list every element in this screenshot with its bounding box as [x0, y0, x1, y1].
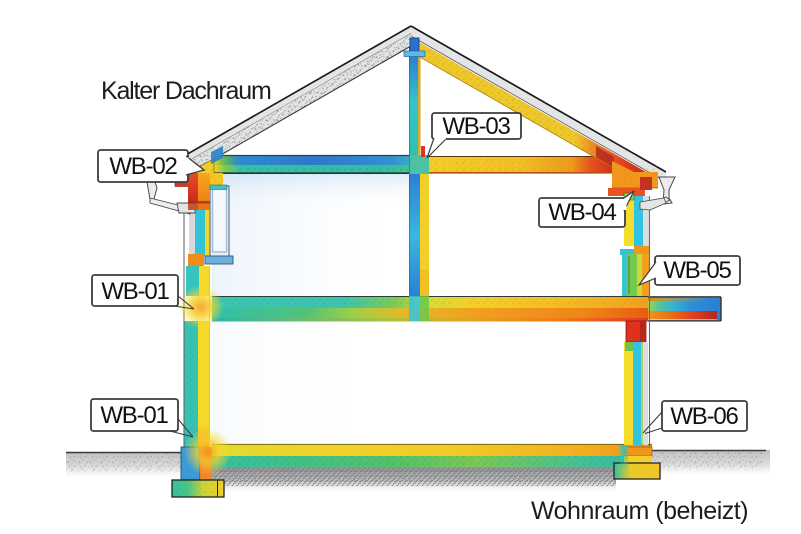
- svg-text:Wohnraum (beheizt): Wohnraum (beheizt): [531, 497, 748, 525]
- svg-text:WB-06: WB-06: [670, 403, 738, 430]
- svg-text:Kalter Dachraum: Kalter Dachraum: [101, 77, 271, 105]
- svg-text:WB-04: WB-04: [548, 199, 616, 226]
- svg-text:WB-03: WB-03: [442, 113, 510, 140]
- svg-text:WB-05: WB-05: [663, 257, 731, 284]
- svg-text:WB-01: WB-01: [101, 278, 169, 305]
- svg-text:WB-02: WB-02: [109, 153, 177, 180]
- svg-text:WB-01: WB-01: [100, 402, 168, 429]
